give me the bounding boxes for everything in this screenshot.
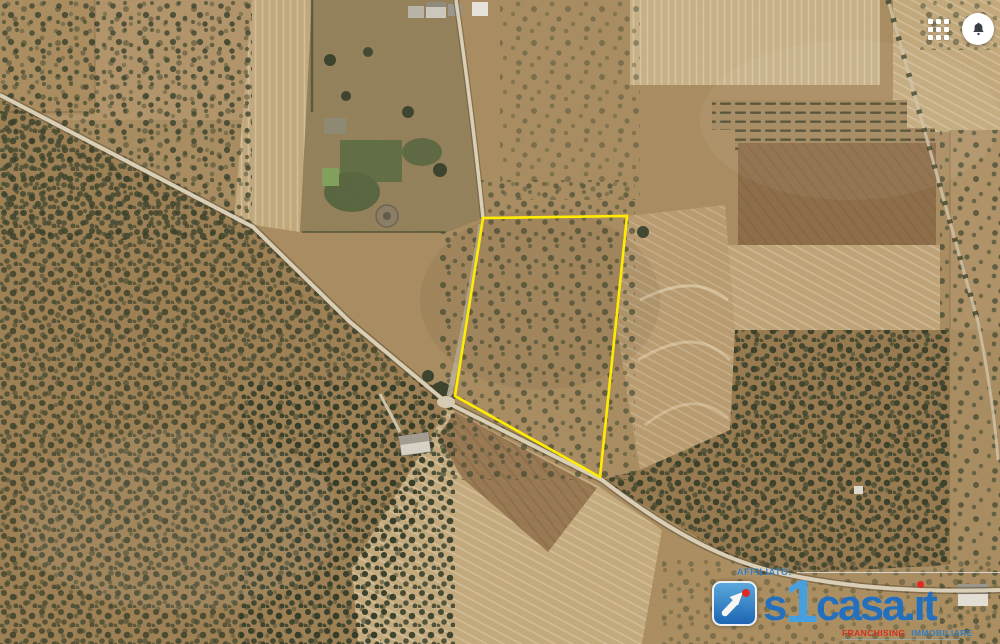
apps-grid-icon[interactable] <box>928 19 949 40</box>
satellite-imagery <box>0 0 1000 644</box>
satellite-map: AFFILIATO: s 1 casa . ı t FRANCHISING <box>0 0 1000 644</box>
notifications-button[interactable] <box>962 13 994 45</box>
bell-icon <box>970 21 987 38</box>
